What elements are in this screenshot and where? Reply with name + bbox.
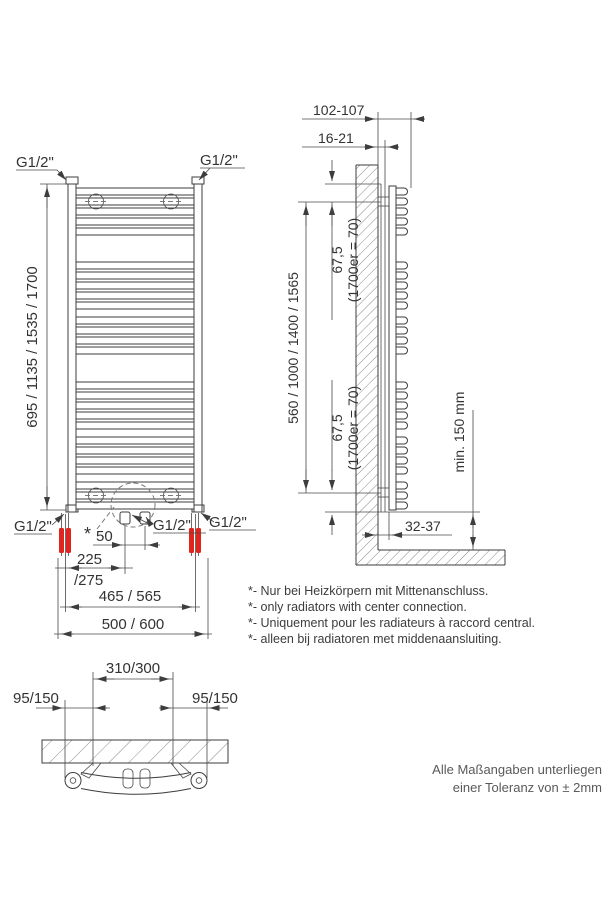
bottom-depth-dim-label: 32-37 (405, 518, 441, 534)
asterisk-mark: * (84, 524, 91, 544)
right-rail (194, 184, 202, 512)
floor-section (378, 550, 505, 565)
red-valve (66, 528, 71, 553)
center-offset-dim-label: 50 (96, 528, 113, 545)
thread-label-bottom-left: G1/2" (14, 518, 52, 535)
radiator-technical-drawing: 695 / 1135 / 1535 / 1700 G1/2" G1/2" G1/… (0, 0, 613, 900)
drawing-canvas: 695 / 1135 / 1535 / 1700 G1/2" G1/2" G1/… (0, 0, 613, 900)
side-view: 102-107 16-21 560 / 1000 / 1400 / 1565 6… (285, 102, 505, 565)
tolerance-line-2: einer Toleranz von ± 2mm (453, 780, 602, 795)
note-line-de: *- Nur bei Heizkörpern mit Mittenanschlu… (248, 584, 488, 598)
bracket-offset-top-label: 67,5 (329, 246, 345, 273)
upper-bracket (378, 197, 389, 206)
center-stub-left (120, 512, 130, 524)
bracket-span-dim-label: 560 / 1000 / 1400 / 1565 (285, 272, 301, 424)
floor-clearance-dimension: min. 150 mm (451, 392, 473, 550)
radiator-top-profile (65, 763, 207, 794)
note-line-en: *- only radiators with center connection… (248, 600, 467, 614)
thread-label-top-left: G1/2" (16, 154, 54, 171)
note-line-nl: *- alleen bij radiatoren met middenaansl… (248, 632, 502, 646)
asterisk-leader (97, 507, 114, 529)
radiator-tubes (76, 188, 194, 509)
tube-loops-side (397, 188, 408, 509)
bracket-offset-bottom-note: (1700er = 70) (345, 386, 361, 470)
wall-section-top (42, 740, 228, 763)
right-rail-top-cap (192, 177, 204, 184)
lower-bracket (378, 488, 389, 497)
notes-block: *- Nur bei Heizkörpern mit Mittenanschlu… (248, 584, 535, 646)
thread-label-top-right: G1/2" (200, 152, 238, 169)
left-center-dim-label-top: 225 (77, 551, 102, 568)
thread-label-bottom-center: G1/2" (153, 517, 191, 534)
top-view: 310/300 95/150 95/150 (13, 660, 238, 794)
total-depth-dim-label: 102-107 (313, 102, 365, 118)
top-right-offset-label: 95/150 (192, 690, 238, 707)
height-dimension: 695 / 1135 / 1535 / 1700 (24, 184, 66, 510)
top-left-offset-label: 95/150 (13, 690, 59, 707)
tolerance-note: Alle Maßangaben unterliegen einer Tolera… (432, 762, 602, 795)
left-rail (68, 184, 76, 512)
connection-span-dim-label: 465 / 565 (99, 588, 162, 605)
bracket-dimensions: 560 / 1000 / 1400 / 1565 67,5 (1700er = … (285, 160, 480, 535)
left-rail-top-cap (66, 177, 78, 184)
red-valve (196, 528, 201, 553)
thread-label-bottom-right: G1/2" (209, 514, 247, 531)
width-dim-label: 500 / 600 (102, 616, 165, 633)
front-view: 695 / 1135 / 1535 / 1700 G1/2" G1/2" G1/… (14, 152, 256, 639)
wall-gap-dim-label: 16-21 (318, 130, 354, 146)
tolerance-line-1: Alle Maßangaben unterliegen (432, 762, 602, 777)
collector-tube-side (389, 186, 396, 510)
left-center-dim-label-bottom: /275 (74, 572, 103, 589)
red-valve (59, 528, 64, 553)
height-dim-label: 695 / 1135 / 1535 / 1700 (24, 266, 41, 428)
floor-clearance-dim-label: min. 150 mm (451, 392, 467, 473)
bracket-offset-top-note: (1700er = 70) (345, 218, 361, 302)
bracket-offset-bottom-label: 67,5 (329, 414, 345, 441)
note-line-fr: *- Uniquement pour les radiateurs à racc… (248, 616, 535, 630)
top-bracket-span-label: 310/300 (106, 660, 160, 677)
